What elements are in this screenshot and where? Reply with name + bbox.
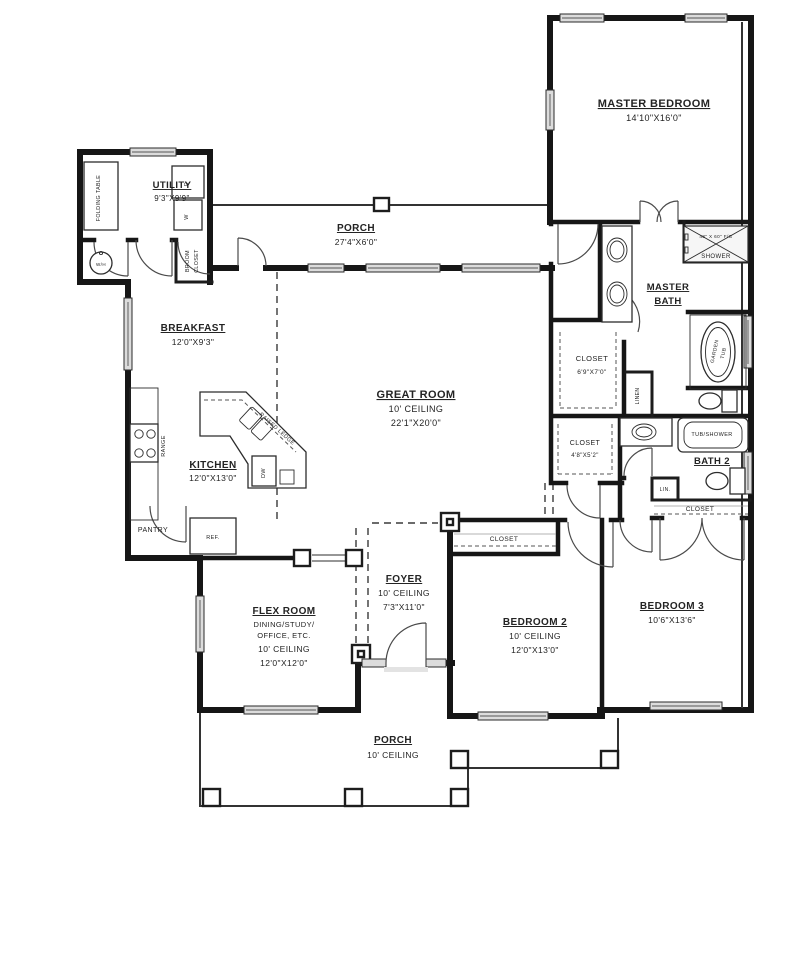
front-porch-post [345, 789, 362, 806]
floor-plan-drawing: MASTER BEDROOM 14'10"X16'0" UTILITY 9'3"… [0, 0, 800, 969]
label-linen: LINEN [635, 388, 641, 405]
bedroom3-door-swing [620, 520, 652, 552]
label-hall-closet-dims: 4'8"X5'2" [571, 453, 599, 459]
label-kitchen-dims: 12'0"X13'0" [189, 473, 237, 483]
label-flex-room: FLEX ROOM [252, 606, 315, 617]
label-bedroom2-ceiling: 10' CEILING [509, 631, 561, 641]
front-door-swing [386, 623, 426, 663]
entry-sidelight [426, 659, 446, 667]
entry-sidelight [362, 659, 386, 667]
label-master-bath-1: MASTER [647, 282, 690, 293]
label-great-room-ceiling: 10' CEILING [389, 404, 444, 414]
opening-post [294, 550, 310, 566]
toilet-bath2 [706, 468, 745, 494]
front-porch-post [601, 751, 618, 768]
label-front-porch: PORCH [374, 735, 412, 746]
utility-door-swing [136, 240, 172, 276]
bath2-door-swing [624, 448, 652, 476]
bedroom2-door-swing [568, 522, 613, 567]
label-range: RANGE [161, 435, 167, 457]
label-utility-dims: 9'3"X9'9" [154, 194, 189, 203]
label-ref: REF. [206, 535, 220, 541]
label-master-closet: CLOSET [576, 354, 608, 363]
label-pantry: PANTRY [138, 527, 168, 534]
label-folding-table: FOLDING TABLE [96, 175, 102, 222]
label-tub-shower: TUB/SHOWER [691, 432, 732, 438]
label-dw: DW [261, 468, 267, 478]
master-hall-door-swing [558, 224, 598, 264]
floor-plan-page: MASTER BEDROOM 14'10"X16'0" UTILITY 9'3"… [0, 0, 800, 969]
label-bath2: BATH 2 [694, 456, 730, 467]
label-hall-closet: CLOSET [570, 440, 601, 447]
opening-post [346, 550, 362, 566]
hall-closet-shelf [558, 424, 612, 474]
label-bedroom2-closet: CLOSET [490, 536, 518, 543]
master-bedroom-double-door [640, 201, 678, 222]
label-foyer-ceiling: 10' CEILING [378, 588, 430, 598]
label-master-closet-dims: 6'9"X7'0" [577, 369, 607, 376]
label-bedroom2: BEDROOM 2 [503, 617, 567, 628]
cased-opening [312, 555, 346, 561]
pantry-door-swing [150, 506, 186, 542]
label-flex-ceiling: 10' CEILING [258, 644, 310, 654]
label-breakfast-dims: 12'0"X9'3" [172, 337, 215, 347]
label-foyer: FOYER [386, 574, 423, 585]
label-rear-porch: PORCH [337, 223, 375, 234]
column-post-core [358, 651, 364, 657]
hall-closet-door-swing [567, 485, 600, 518]
label-bedroom2-dims: 12'0"X13'0" [511, 645, 559, 655]
label-lin: LIN. [660, 487, 671, 493]
rear-porch-post [374, 198, 389, 211]
label-flex-sub2: OFFICE, ETC. [257, 631, 311, 640]
label-dryer: D [184, 182, 190, 186]
bedroom3-closet-double-door [660, 518, 744, 560]
label-bedroom3: BEDROOM 3 [640, 601, 704, 612]
front-porch-post [203, 789, 220, 806]
label-great-room: GREAT ROOM [377, 389, 456, 401]
label-foyer-dims: 7'3"X11'0" [383, 602, 425, 612]
label-master-bedroom-dims: 14'10"X16'0" [626, 113, 682, 123]
fixtures [84, 162, 748, 554]
label-front-porch-ceiling: 10' CEILING [367, 750, 419, 760]
label-great-room-dims: 22'1"X20'0" [391, 418, 441, 428]
foyer-colonnade-line [356, 528, 368, 644]
front-porch-post [451, 789, 468, 806]
front-porch-post [451, 751, 468, 768]
label-broom-closet-2: CLOSET [194, 249, 200, 273]
porch-door-swing [238, 238, 266, 266]
label-bedroom3-dims: 10'6"X13'6" [648, 615, 696, 625]
label-breakfast: BREAKFAST [161, 323, 226, 334]
kitchen-counter [130, 388, 158, 520]
label-kitchen: KITCHEN [189, 460, 236, 471]
label-flex-sub1: DINING/STUDY/ [253, 620, 315, 629]
label-rear-porch-dims: 27'4"X6'0" [335, 237, 378, 247]
hall-opening-line [545, 483, 553, 518]
label-wh: W/H [96, 262, 106, 267]
label-bedroom3-closet: CLOSET [686, 506, 714, 513]
label-flex-dims: 12'0"X12'0" [260, 658, 308, 668]
label-washer: W [184, 214, 190, 220]
label-master-bedroom: MASTER BEDROOM [598, 98, 711, 110]
garden-tub [690, 315, 746, 389]
column-post-core [447, 519, 453, 525]
label-shower-size: 48" X 60" F/G [699, 234, 732, 239]
label-master-bath-2: BATH [654, 296, 681, 307]
toilet-master [699, 390, 737, 412]
interior-walls [80, 222, 751, 716]
master-vanity [602, 226, 632, 322]
bath2-vanity [620, 418, 672, 446]
entry-step [384, 667, 428, 672]
label-shower: SHOWER [701, 254, 731, 260]
label-broom-closet-1: BROOM [185, 250, 191, 272]
